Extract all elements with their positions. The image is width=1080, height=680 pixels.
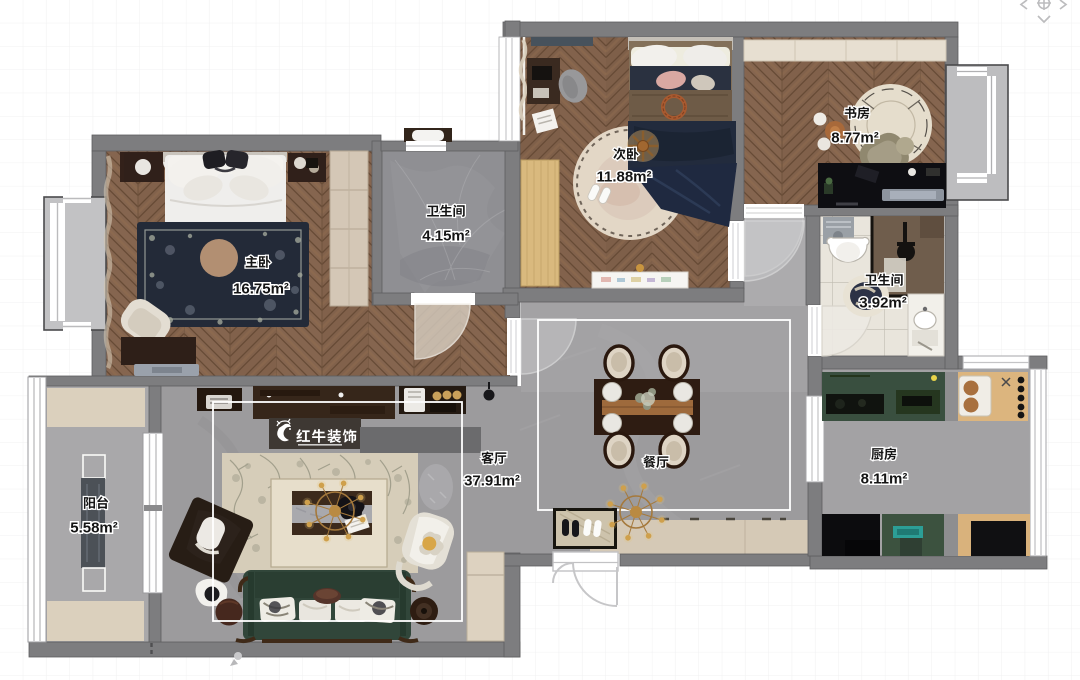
svg-text:8.77m²: 8.77m² [831,129,879,146]
svg-text:16.75m²: 16.75m² [233,280,289,297]
svg-text:3.92m²: 3.92m² [859,294,907,311]
svg-text:8.11m²: 8.11m² [861,470,908,487]
svg-text:5.58m²: 5.58m² [70,519,118,536]
svg-text:37.91m²: 37.91m² [464,472,520,489]
svg-text:11.88m²: 11.88m² [596,168,651,185]
svg-text:4.15m²: 4.15m² [422,227,470,244]
